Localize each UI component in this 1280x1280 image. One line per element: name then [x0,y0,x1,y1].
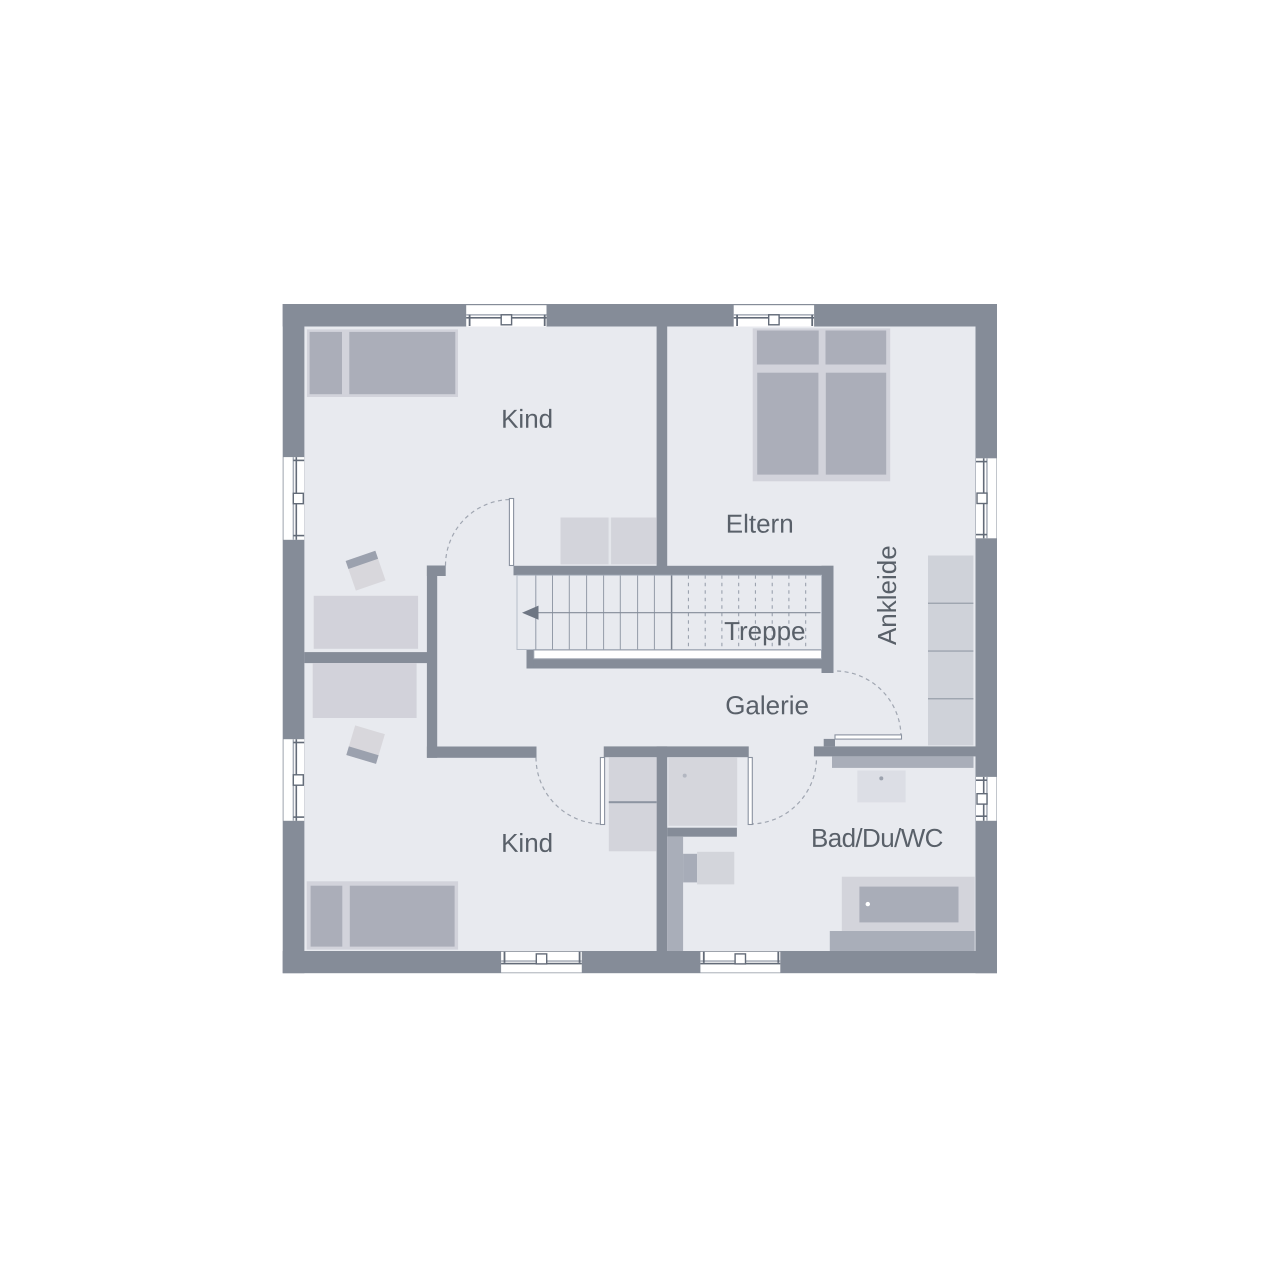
svg-text:Ankleide: Ankleide [872,545,902,645]
svg-text:Kind: Kind [501,828,553,858]
svg-text:Eltern: Eltern [726,509,794,539]
svg-text:Kind: Kind [501,404,553,434]
svg-text:Galerie: Galerie [725,690,809,720]
svg-text:Treppe: Treppe [724,616,805,646]
svg-text:Bad/Du/WC: Bad/Du/WC [811,823,943,853]
